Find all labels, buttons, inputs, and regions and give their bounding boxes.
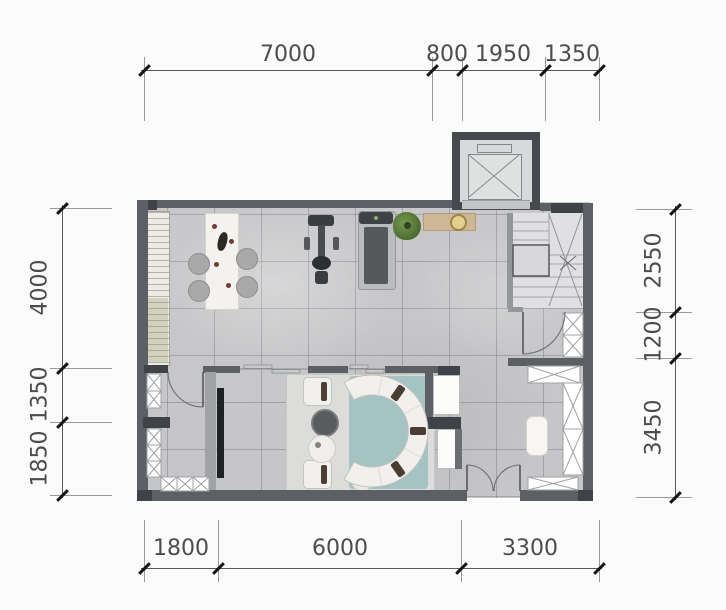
stair-landing (513, 245, 549, 276)
dim-label: 3300 (500, 536, 560, 561)
plan-vector-overlay (0, 0, 726, 610)
door-swings (168, 312, 565, 491)
dim-label: 4000 (28, 248, 53, 328)
dim-label: 1950 (473, 42, 533, 67)
dim-label: 6000 (300, 536, 380, 561)
dim-label: 1800 (151, 536, 211, 561)
sliding-door (240, 365, 385, 373)
hatch-cabinets (147, 313, 583, 491)
dim-label: 3450 (642, 388, 667, 468)
curved-sofa (344, 375, 428, 487)
dim-label: 7000 (248, 42, 328, 67)
dim-label: 1350 (542, 42, 602, 67)
dim-label: 2550 (642, 221, 667, 301)
elevator-car-cross (469, 155, 519, 197)
dim-label: 800 (417, 42, 477, 67)
dim-label: 1850 (28, 419, 53, 499)
staircase (513, 213, 583, 306)
floor-plan-canvas: 7000 800 1950 1350 1800 6000 3300 4000 1… (0, 0, 726, 610)
dim-label: 1200 (642, 295, 667, 375)
